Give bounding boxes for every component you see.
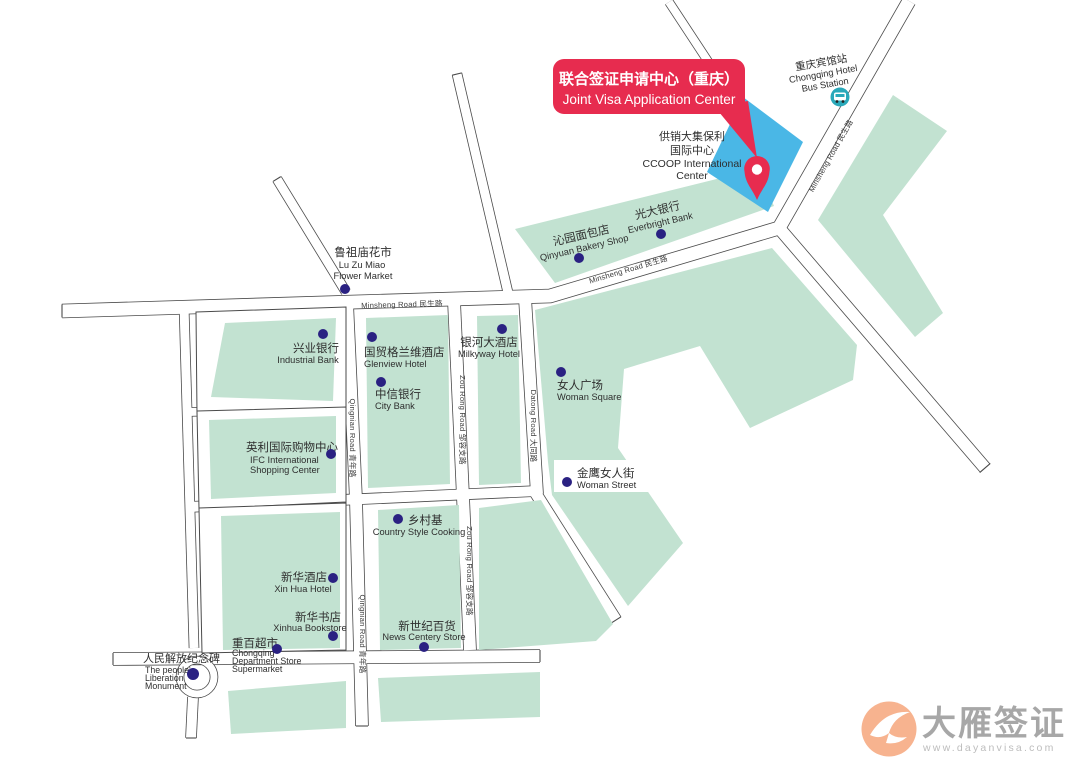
poi-label: 国贸格兰维酒店 xyxy=(364,345,445,359)
marker-dot xyxy=(318,329,328,339)
marker-dot xyxy=(272,644,282,654)
marker-dot xyxy=(328,573,338,583)
poi-label: News Centery Store xyxy=(382,632,465,642)
poi-bus-station: 重庆宾馆站 Chongqing Hotel Bus Station xyxy=(786,50,860,96)
poi-luzumiao-flower-market: 鲁祖庙花市 Lu Zu Miao Flower Market xyxy=(334,245,393,294)
poi-label: Monument xyxy=(145,681,187,691)
poi-label: 供销大集保利 xyxy=(659,129,725,143)
label-qingnian-road-2: Qingnian Road 青年路 xyxy=(358,595,368,674)
poi-label: CCOOP International xyxy=(642,158,741,170)
poi-label: 国际中心 xyxy=(670,144,714,157)
map-canvas: Minsheng Road 民生路 Minsheng Road 民生路 Mins… xyxy=(0,0,1087,767)
poi-label: 乡村基 xyxy=(408,513,443,527)
marker-dot xyxy=(393,514,403,524)
block-woman-square xyxy=(535,248,857,606)
poi-label: Industrial Bank xyxy=(277,355,339,365)
marker-dot xyxy=(367,332,377,342)
poi-label: 人民解放纪念碑 xyxy=(143,651,220,665)
poi-label: 兴业银行 xyxy=(293,341,339,355)
block-bottom-left xyxy=(228,681,346,734)
poi-label: Lu Zu Miao xyxy=(339,260,386,270)
marker-dot xyxy=(497,324,507,334)
poi-label: Woman Square xyxy=(557,392,621,402)
poi-label: Milkyway Hotel xyxy=(458,349,520,359)
poi-label: Shopping Center xyxy=(250,465,320,475)
marker-dot xyxy=(376,377,386,387)
poi-label: Flower Market xyxy=(334,271,393,281)
banner-title-zh: 联合签证申请中心（重庆） xyxy=(559,70,739,88)
poi-label: 鲁祖庙花市 xyxy=(334,245,392,259)
poi-label: Glenview Hotel xyxy=(364,359,427,369)
label-datong-road: Datong Road 大同路 xyxy=(529,390,539,463)
banner-title-en: Joint Visa Application Center xyxy=(563,92,736,107)
poi-label: Xinhua Bookstore xyxy=(273,623,346,633)
label-zourong-road-1: Zou Rong Road 邹容支路 xyxy=(458,375,468,465)
label-qingnian-road-1: Qingnian Road 青年路 xyxy=(348,399,358,478)
poi-label: 新华书店 xyxy=(295,610,341,624)
marker-dot-qinyuan xyxy=(574,253,584,263)
poi-label: City Bank xyxy=(375,401,415,411)
block-bottom-right xyxy=(378,672,540,722)
marker-dot xyxy=(340,284,350,294)
poi-label: IFC International xyxy=(250,455,319,465)
poi-label: 女人广场 xyxy=(557,378,603,392)
bus-icon xyxy=(831,88,850,107)
poi-label: Center xyxy=(676,170,708,182)
label-zourong-road-2: Zou Rong Road 邹容支路 xyxy=(465,526,475,616)
poi-label: 新华酒店 xyxy=(281,570,327,584)
marker-dot xyxy=(326,449,336,459)
poi-label: 中信银行 xyxy=(375,387,421,401)
logo-name: 大雁签证 xyxy=(922,705,1066,743)
poi-label: 金鹰女人街 xyxy=(577,466,635,480)
marker-dot xyxy=(328,631,338,641)
marker-dot xyxy=(556,367,566,377)
marker-dot xyxy=(187,668,199,680)
poi-label: 新世纪百货 xyxy=(398,619,456,633)
logo-url: www.dayanvisa.com xyxy=(922,742,1056,754)
poi-label: Country Style Cooking xyxy=(373,527,466,537)
poi-label: Supermarket xyxy=(232,664,283,674)
marker-dot xyxy=(562,477,572,487)
poi-label: 银河大酒店 xyxy=(460,335,518,349)
marker-dot xyxy=(419,642,429,652)
city-map: Minsheng Road 民生路 Minsheng Road 民生路 Mins… xyxy=(0,0,1087,767)
marker-dot-everbright xyxy=(656,229,666,239)
dayan-visa-logo: 大雁签证 www.dayanvisa.com xyxy=(862,702,1067,757)
poi-label: Xin Hua Hotel xyxy=(274,584,331,594)
poi-label: 英利国际购物中心 xyxy=(246,440,338,454)
poi-label: Woman Street xyxy=(577,480,637,490)
